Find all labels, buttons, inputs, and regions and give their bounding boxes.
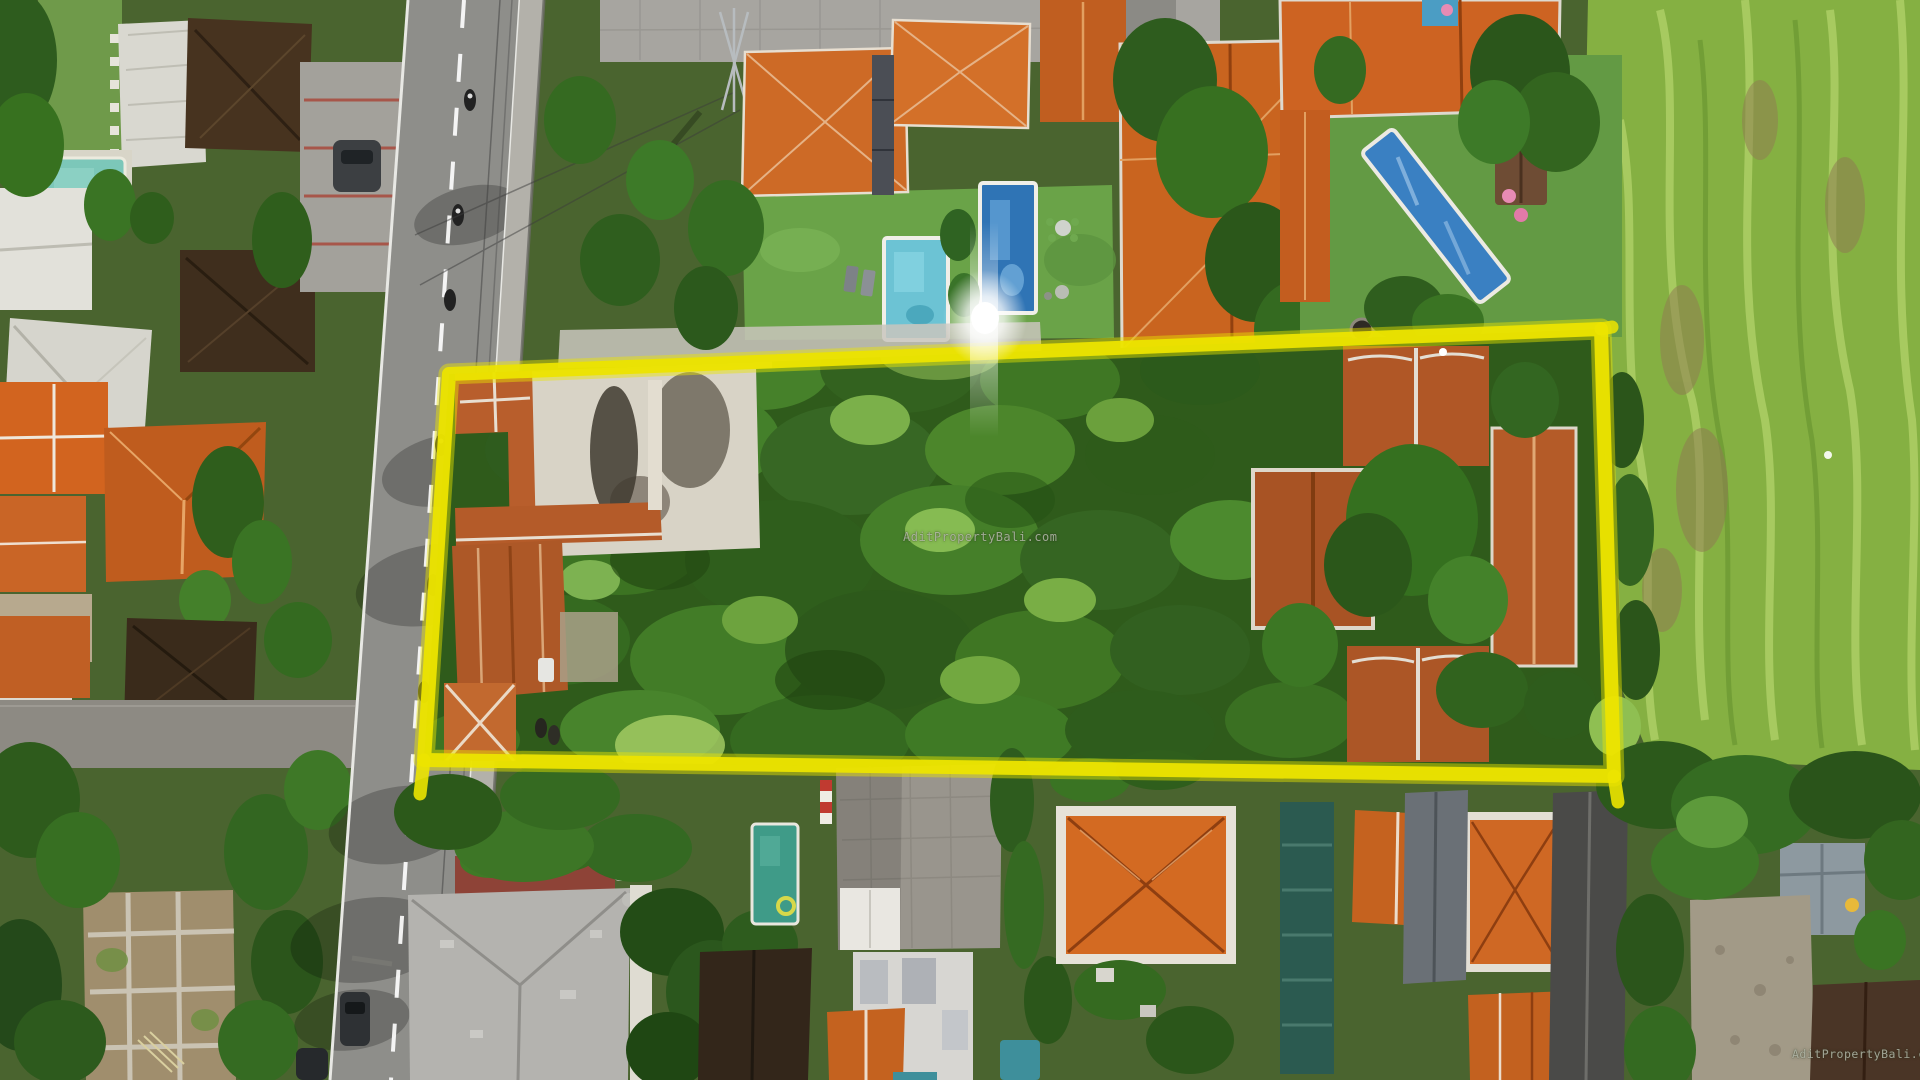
pool-fragment-top bbox=[1422, 0, 1458, 26]
parked-car bbox=[333, 140, 381, 192]
plot-interior bbox=[420, 323, 1615, 785]
pink-float bbox=[1502, 189, 1516, 203]
yellow-object bbox=[1845, 898, 1859, 912]
car-on-road-2 bbox=[296, 1048, 328, 1080]
mini-pool-2 bbox=[893, 1072, 937, 1080]
pink-float-2 bbox=[1514, 208, 1528, 222]
street-parking-bays bbox=[300, 62, 403, 292]
construction-site bbox=[83, 890, 236, 1080]
paver-courtyard bbox=[836, 764, 1002, 950]
boundary-tail-bl bbox=[420, 760, 424, 794]
green-pool bbox=[752, 824, 798, 924]
aerial-photo: AditPropertyBali.com AditPropertyBali.co… bbox=[0, 0, 1920, 1080]
dark-lap-pool bbox=[1280, 802, 1334, 1074]
solar-panel-strip bbox=[872, 55, 894, 195]
striped-marker bbox=[820, 780, 832, 824]
villa-roof-b bbox=[890, 20, 1030, 128]
white-car-in-plot bbox=[538, 658, 554, 682]
orange-roof-lane bbox=[0, 616, 90, 698]
mini-pool bbox=[1000, 1040, 1040, 1080]
boundary-tail-tr bbox=[1601, 327, 1612, 329]
orange-pyramid-villa bbox=[1056, 806, 1236, 964]
brown-roof-bottom bbox=[698, 948, 812, 1080]
brown-roof-top bbox=[185, 18, 312, 152]
aerial-photo-canvas bbox=[0, 0, 1920, 1080]
car-on-road bbox=[340, 992, 370, 1046]
boundary-tail-br bbox=[1614, 776, 1618, 802]
